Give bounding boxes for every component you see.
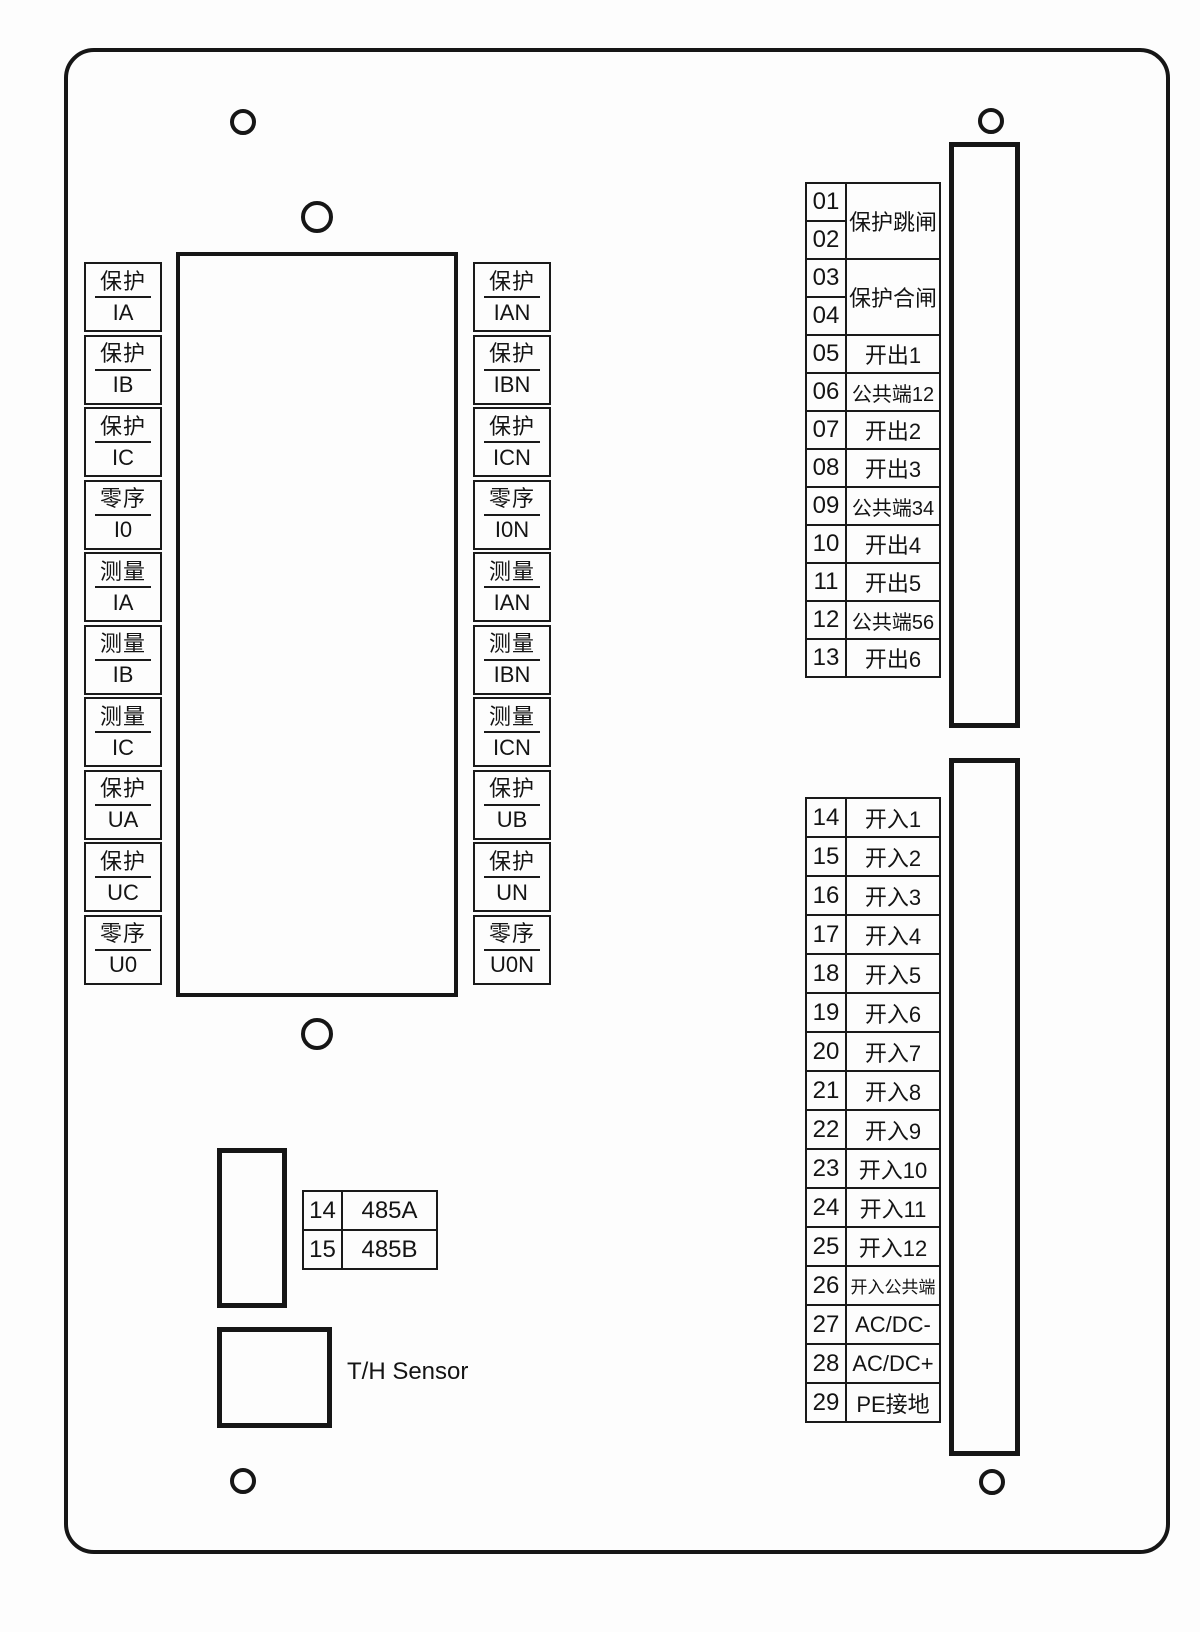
table-row: 27 AC/DC- — [806, 1305, 940, 1344]
th-sensor-block — [217, 1327, 332, 1428]
divider-line — [484, 876, 540, 878]
table-row: 25 开入12 — [806, 1227, 940, 1266]
table-row: 13 开出6 — [806, 639, 940, 677]
terminal-label: 开入10 — [846, 1149, 940, 1188]
terminal-number: 13 — [806, 639, 846, 677]
table-row: 12 公共端56 — [806, 601, 940, 639]
divider-line — [484, 369, 540, 371]
terminal-signal-label: IC — [112, 447, 134, 469]
terminal-label-box: 测量IBN — [473, 625, 551, 695]
terminal-label: 485A — [342, 1191, 437, 1230]
terminal-label: 开出3 — [846, 449, 940, 487]
divider-line — [95, 949, 151, 951]
terminal-label-box: 保护IAN — [473, 262, 551, 332]
terminal-label: 公共端12 — [846, 373, 940, 411]
terminal-label: 开入9 — [846, 1110, 940, 1149]
terminal-signal-label: UN — [496, 882, 528, 904]
terminal-group-label: 保护 — [100, 851, 146, 873]
terminal-number: 09 — [806, 487, 846, 525]
terminal-signal-label: I0 — [114, 519, 132, 541]
terminal-group-label: 零序 — [100, 923, 146, 945]
terminal-label: 开入1 — [846, 798, 940, 837]
analog-input-block — [176, 252, 458, 997]
divider-line — [95, 659, 151, 661]
terminal-group-label: 测量 — [489, 706, 535, 728]
terminal-label-box: 保护IC — [84, 407, 162, 477]
terminal-label-box: 测量IA — [84, 552, 162, 622]
table-row: 09 公共端34 — [806, 487, 940, 525]
terminal-number: 14 — [303, 1191, 342, 1230]
terminal-number: 11 — [806, 563, 846, 601]
terminal-label: AC/DC- — [846, 1305, 940, 1344]
divider-line — [95, 441, 151, 443]
terminal-label-box: 零序U0 — [84, 915, 162, 985]
terminal-label-box: 保护UC — [84, 842, 162, 912]
terminal-signal-label: IBN — [494, 664, 531, 686]
table-row: 10 开出4 — [806, 525, 940, 563]
mounting-hole — [301, 201, 333, 233]
table-row: 05 开出1 — [806, 335, 940, 373]
left-terminal-column: 保护IA 保护IB 保护IC 零序I0 测量IA 测量IB 测量IC 保护UA … — [84, 262, 162, 985]
terminal-number: 28 — [806, 1344, 846, 1383]
divider-line — [484, 659, 540, 661]
table-row: 11 开出5 — [806, 563, 940, 601]
table-row: 07 开出2 — [806, 411, 940, 449]
terminal-signal-label: UB — [497, 809, 528, 831]
terminal-signal-label: UA — [108, 809, 139, 831]
terminal-number: 26 — [806, 1266, 846, 1305]
terminal-label-box: 零序U0N — [473, 915, 551, 985]
divider-line — [95, 296, 151, 298]
table-row: 22 开入9 — [806, 1110, 940, 1149]
terminal-label: 开入4 — [846, 915, 940, 954]
divider-line — [95, 586, 151, 588]
terminal-label-box: 保护ICN — [473, 407, 551, 477]
comm-connector-block — [217, 1148, 287, 1308]
terminal-label: 保护合闸 — [846, 259, 940, 335]
table-row: 21 开入8 — [806, 1071, 940, 1110]
terminal-number: 14 — [806, 798, 846, 837]
table-row: 03 保护合闸 — [806, 259, 940, 297]
table-row: 26 开入公共端 — [806, 1266, 940, 1305]
table-row: 29 PE接地 — [806, 1383, 940, 1422]
terminal-label-box: 保护UA — [84, 770, 162, 840]
table-row: 23 开入10 — [806, 1149, 940, 1188]
terminal-signal-label: ICN — [493, 737, 531, 759]
divider-line — [484, 804, 540, 806]
terminal-label: 开入5 — [846, 954, 940, 993]
terminal-signal-label: ICN — [493, 447, 531, 469]
terminal-group-label: 测量 — [489, 633, 535, 655]
table-row: 15 开入2 — [806, 837, 940, 876]
divider-line — [484, 296, 540, 298]
terminal-label: 485B — [342, 1230, 437, 1269]
terminal-label-box: 测量IB — [84, 625, 162, 695]
terminal-signal-label: U0 — [109, 954, 137, 976]
output-terminal-table: 01 保护跳闸 02 03 保护合闸 04 05 开出1 06 公共端12 07… — [805, 182, 941, 678]
terminal-number: 21 — [806, 1071, 846, 1110]
terminal-group-label: 零序 — [489, 488, 535, 510]
terminal-signal-label: IB — [113, 664, 134, 686]
terminal-signal-label: IA — [113, 302, 134, 324]
terminal-number: 16 — [806, 876, 846, 915]
terminal-group-label: 保护 — [100, 271, 146, 293]
table-row: 18 开入5 — [806, 954, 940, 993]
terminal-number: 07 — [806, 411, 846, 449]
terminal-number: 19 — [806, 993, 846, 1032]
terminal-label: 开入3 — [846, 876, 940, 915]
terminal-label-box: 保护IA — [84, 262, 162, 332]
terminal-group-label: 零序 — [489, 923, 535, 945]
table-row: 15 485B — [303, 1230, 437, 1269]
terminal-label: 开出2 — [846, 411, 940, 449]
terminal-label: 开入公共端 — [846, 1266, 940, 1305]
table-row: 08 开出3 — [806, 449, 940, 487]
terminal-number: 20 — [806, 1032, 846, 1071]
terminal-signal-label: U0N — [490, 954, 534, 976]
terminal-group-label: 保护 — [489, 851, 535, 873]
terminal-number: 04 — [806, 297, 846, 335]
right-terminal-column: 保护IAN 保护IBN 保护ICN 零序I0N 测量IAN 测量IBN 测量IC… — [473, 262, 551, 985]
terminal-group-label: 测量 — [100, 633, 146, 655]
terminal-label-box: 测量ICN — [473, 697, 551, 767]
divider-line — [95, 731, 151, 733]
th-sensor-label: T/H Sensor — [347, 1358, 468, 1386]
terminal-number: 22 — [806, 1110, 846, 1149]
terminal-number: 29 — [806, 1383, 846, 1422]
terminal-group-label: 保护 — [489, 416, 535, 438]
terminal-number: 24 — [806, 1188, 846, 1227]
terminal-label: 开入6 — [846, 993, 940, 1032]
terminal-wiring-diagram: T/H Sensor 保护IA 保护IB 保护IC 零序I0 测量IA 测量IB… — [0, 0, 1200, 1632]
terminal-group-label: 保护 — [489, 343, 535, 365]
terminal-number: 05 — [806, 335, 846, 373]
mounting-hole — [230, 1468, 256, 1494]
terminal-label: 开出5 — [846, 563, 940, 601]
table-row: 14 485A — [303, 1191, 437, 1230]
table-row: 24 开入11 — [806, 1188, 940, 1227]
terminal-signal-label: IC — [112, 737, 134, 759]
table-row: 14 开入1 — [806, 798, 940, 837]
terminal-group-label: 零序 — [100, 488, 146, 510]
divider-line — [95, 514, 151, 516]
table-row: 20 开入7 — [806, 1032, 940, 1071]
terminal-number: 12 — [806, 601, 846, 639]
divider-line — [95, 369, 151, 371]
terminal-label-box: 保护UN — [473, 842, 551, 912]
terminal-number: 25 — [806, 1227, 846, 1266]
terminal-label-box: 测量IAN — [473, 552, 551, 622]
terminal-number: 08 — [806, 449, 846, 487]
terminal-signal-label: IAN — [494, 302, 531, 324]
terminal-group-label: 保护 — [489, 778, 535, 800]
terminal-label-box: 保护IB — [84, 335, 162, 405]
table-row: 16 开入3 — [806, 876, 940, 915]
terminal-number: 23 — [806, 1149, 846, 1188]
terminal-label: 开入7 — [846, 1032, 940, 1071]
terminal-number: 10 — [806, 525, 846, 563]
terminal-label-box: 保护IBN — [473, 335, 551, 405]
mounting-hole — [978, 108, 1004, 134]
terminal-group-label: 保护 — [100, 416, 146, 438]
terminal-group-label: 测量 — [489, 561, 535, 583]
terminal-label: 保护跳闸 — [846, 183, 940, 259]
table-row: 06 公共端12 — [806, 373, 940, 411]
terminal-label-box: 保护UB — [473, 770, 551, 840]
terminal-number: 27 — [806, 1305, 846, 1344]
terminal-signal-label: IBN — [494, 374, 531, 396]
table-row: 19 开入6 — [806, 993, 940, 1032]
divider-line — [484, 586, 540, 588]
terminal-number: 03 — [806, 259, 846, 297]
terminal-label: 公共端34 — [846, 487, 940, 525]
table-row: 28 AC/DC+ — [806, 1344, 940, 1383]
mounting-hole — [301, 1018, 333, 1050]
terminal-label: 开入12 — [846, 1227, 940, 1266]
input-terminal-table: 14 开入1 15 开入2 16 开入3 17 开入4 18 开入5 19 开入… — [805, 797, 941, 1423]
terminal-number: 15 — [303, 1230, 342, 1269]
input-connector-block — [949, 758, 1020, 1456]
divider-line — [95, 804, 151, 806]
comm-terminal-table: 14 485A 15 485B — [302, 1190, 438, 1270]
terminal-group-label: 测量 — [100, 561, 146, 583]
table-row: 17 开入4 — [806, 915, 940, 954]
divider-line — [484, 441, 540, 443]
terminal-label: 开入11 — [846, 1188, 940, 1227]
terminal-number: 02 — [806, 221, 846, 259]
table-row: 01 保护跳闸 — [806, 183, 940, 221]
terminal-group-label: 保护 — [100, 343, 146, 365]
terminal-label-box: 零序I0 — [84, 480, 162, 550]
terminal-label: 公共端56 — [846, 601, 940, 639]
terminal-signal-label: IB — [113, 374, 134, 396]
terminal-group-label: 保护 — [100, 778, 146, 800]
mounting-hole — [979, 1469, 1005, 1495]
divider-line — [95, 876, 151, 878]
terminal-group-label: 测量 — [100, 706, 146, 728]
terminal-signal-label: UC — [107, 882, 139, 904]
terminal-label: 开出1 — [846, 335, 940, 373]
terminal-group-label: 保护 — [489, 271, 535, 293]
terminal-signal-label: I0N — [495, 519, 529, 541]
terminal-label: 开入8 — [846, 1071, 940, 1110]
terminal-number: 17 — [806, 915, 846, 954]
terminal-label: 开出4 — [846, 525, 940, 563]
terminal-signal-label: IAN — [494, 592, 531, 614]
terminal-label: PE接地 — [846, 1383, 940, 1422]
terminal-label-box: 零序I0N — [473, 480, 551, 550]
terminal-number: 06 — [806, 373, 846, 411]
terminal-number: 15 — [806, 837, 846, 876]
terminal-signal-label: IA — [113, 592, 134, 614]
terminal-label-box: 测量IC — [84, 697, 162, 767]
divider-line — [484, 514, 540, 516]
terminal-label: AC/DC+ — [846, 1344, 940, 1383]
terminal-label: 开出6 — [846, 639, 940, 677]
mounting-hole — [230, 109, 256, 135]
terminal-number: 01 — [806, 183, 846, 221]
terminal-label: 开入2 — [846, 837, 940, 876]
divider-line — [484, 949, 540, 951]
terminal-number: 18 — [806, 954, 846, 993]
output-connector-block — [949, 142, 1020, 728]
divider-line — [484, 731, 540, 733]
